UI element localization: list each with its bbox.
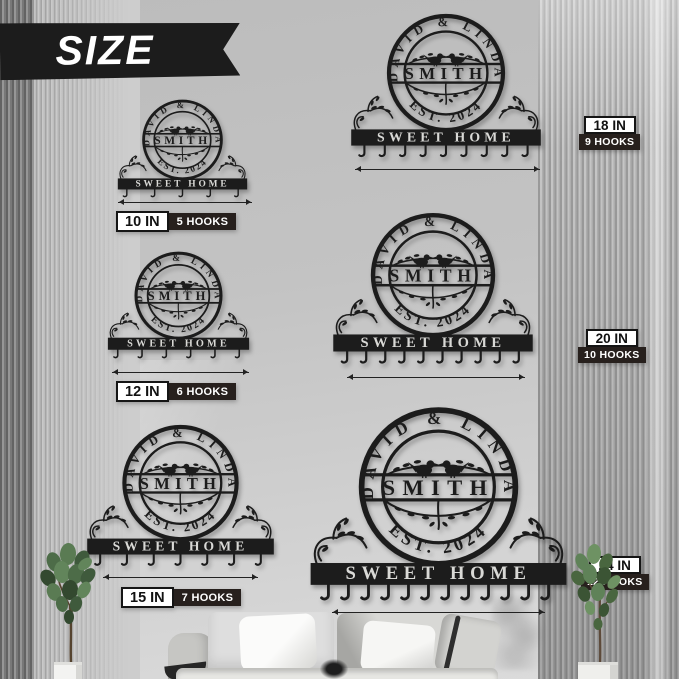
hooks-group (342, 351, 519, 362)
hook (422, 585, 429, 599)
sign-family-name-text: SMITH (383, 475, 495, 500)
hooks-group (359, 146, 527, 156)
hook (475, 351, 480, 362)
hooks-value: 6 HOOKS (169, 383, 237, 400)
hook (211, 350, 215, 358)
hook (175, 555, 180, 565)
sign-family-name-text: SMITH (389, 265, 476, 285)
hook (179, 189, 182, 196)
branch-top (144, 467, 217, 473)
hook (456, 351, 461, 362)
plant-left-graphic (24, 534, 114, 679)
hook (502, 585, 509, 599)
dimension-line-15in (103, 577, 258, 578)
dimension-line-20in (347, 377, 525, 378)
size-plaque-15in: 15 IN 7 HOOKS (121, 587, 241, 608)
couch-center-seam (320, 659, 348, 679)
branch-top (151, 284, 206, 289)
branch-top (394, 258, 472, 265)
hooks-group (95, 555, 261, 565)
hooks-group (114, 350, 239, 358)
sign-family-name-text: SMITH (405, 64, 488, 83)
dimension-line-24in (332, 612, 545, 613)
sign-sweet-home-text: SWEET HOME (377, 129, 515, 144)
size-plaque-12in: 12 IN 6 HOOKS (116, 381, 236, 402)
hook (418, 351, 423, 362)
sign-sweet-home-text: SWEET HOME (135, 180, 229, 190)
hook (461, 146, 466, 156)
sign-sweet-home-text: SWEET HOME (113, 538, 249, 553)
branch-top (409, 57, 483, 63)
dimension-line-10in (118, 202, 252, 203)
leaves (37, 542, 98, 624)
sign-family-name-text: SMITH (140, 474, 222, 493)
hook (494, 351, 499, 362)
hook (163, 350, 167, 358)
leaves (568, 543, 623, 630)
sign-family-name-text: SMITH (148, 289, 210, 303)
size-plaque-10in: 10 IN 5 HOOKS (116, 211, 236, 232)
hook (380, 351, 385, 362)
hook (202, 555, 207, 565)
hook (235, 350, 239, 358)
hook (437, 351, 442, 362)
potted-plant-right (556, 536, 640, 679)
size-value: 12 IN (116, 381, 169, 402)
hook (382, 585, 389, 599)
hooks-value: 9 HOOKS (579, 134, 640, 150)
branch-top (157, 129, 208, 133)
hook (502, 146, 507, 156)
size-value: 10 IN (116, 211, 169, 232)
sign-sweet-home-text: SWEET HOME (127, 339, 230, 350)
metal-sign-graphic: DAVID & LINDA EST. 2024 SMITH SWEET HOME (107, 251, 250, 364)
hook (402, 585, 409, 599)
hook (149, 555, 154, 565)
sign-10in: DAVID & LINDA EST. 2024 SMITH SWEET HOME (117, 99, 248, 202)
dimension-line-12in (112, 372, 249, 373)
sign-family-name-text: SMITH (154, 135, 211, 147)
metal-sign-graphic: DAVID & LINDA EST. 2024 SMITH SWEET HOME (117, 99, 248, 202)
hook (322, 585, 329, 599)
size-value: 18 IN (584, 116, 636, 134)
hooks-value: 10 HOOKS (578, 347, 646, 363)
hook (513, 351, 518, 362)
hook (399, 351, 404, 362)
hook (342, 351, 347, 362)
size-value: 20 IN (586, 329, 638, 347)
hook (542, 585, 549, 599)
sign-24in: DAVID & LINDA EST. 2024 SMITH SWEET HOME (309, 406, 568, 610)
dimension-line-18in (355, 169, 540, 170)
hook (442, 585, 449, 599)
plant-right-graphic (556, 536, 640, 679)
hook (441, 146, 446, 156)
hook (400, 146, 405, 156)
potted-plant-left (24, 534, 114, 679)
size-banner-label: SIZE (55, 26, 185, 74)
hook (114, 350, 118, 358)
sign-sweet-home-text: SWEET HOME (360, 335, 505, 351)
branch-top (388, 465, 488, 473)
sign-20in: DAVID & LINDA EST. 2024 SMITH SWEET HOME (332, 212, 534, 371)
sign-15in: DAVID & LINDA EST. 2024 SMITH SWEET HOME (86, 424, 275, 573)
hooks-value: 7 HOOKS (174, 589, 242, 606)
sign-12in: DAVID & LINDA EST. 2024 SMITH SWEET HOME (107, 251, 250, 364)
metal-sign-graphic: DAVID & LINDA EST. 2024 SMITH SWEET HOME (332, 212, 534, 371)
hook (229, 555, 234, 565)
hook (123, 189, 126, 196)
hook (359, 146, 364, 156)
metal-sign-graphic: DAVID & LINDA EST. 2024 SMITH SWEET HOME (350, 13, 542, 164)
sign-sweet-home-text: SWEET HOME (345, 563, 531, 584)
hook (151, 189, 154, 196)
hook (138, 350, 142, 358)
hook (187, 350, 191, 358)
hook (207, 189, 210, 196)
hook (462, 585, 469, 599)
size-plaque-20in: 20 IN 10 HOOKS (578, 329, 646, 363)
hooks-group (123, 189, 238, 196)
hook (522, 585, 529, 599)
metal-sign-graphic: DAVID & LINDA EST. 2024 SMITH SWEET HOME (86, 424, 275, 573)
hook (380, 146, 385, 156)
hook (342, 585, 349, 599)
hook (256, 555, 261, 565)
metal-sign-graphic: DAVID & LINDA EST. 2024 SMITH SWEET HOME (309, 406, 568, 610)
hook (361, 351, 366, 362)
hook (421, 146, 426, 156)
size-plaque-18in: 18 IN 9 HOOKS (579, 116, 640, 150)
hook (235, 189, 238, 196)
hook (362, 585, 369, 599)
sign-18in: DAVID & LINDA EST. 2024 SMITH SWEET HOME (350, 13, 542, 164)
product-size-chart: SIZE (0, 0, 679, 679)
hook (122, 555, 127, 565)
size-value: 15 IN (121, 587, 174, 608)
hooks-group (322, 585, 549, 599)
hook (522, 146, 527, 156)
hook (482, 585, 489, 599)
size-banner: SIZE (0, 21, 240, 81)
hooks-value: 5 HOOKS (169, 213, 237, 230)
couch-pillow-left (239, 613, 318, 672)
hook (482, 146, 487, 156)
